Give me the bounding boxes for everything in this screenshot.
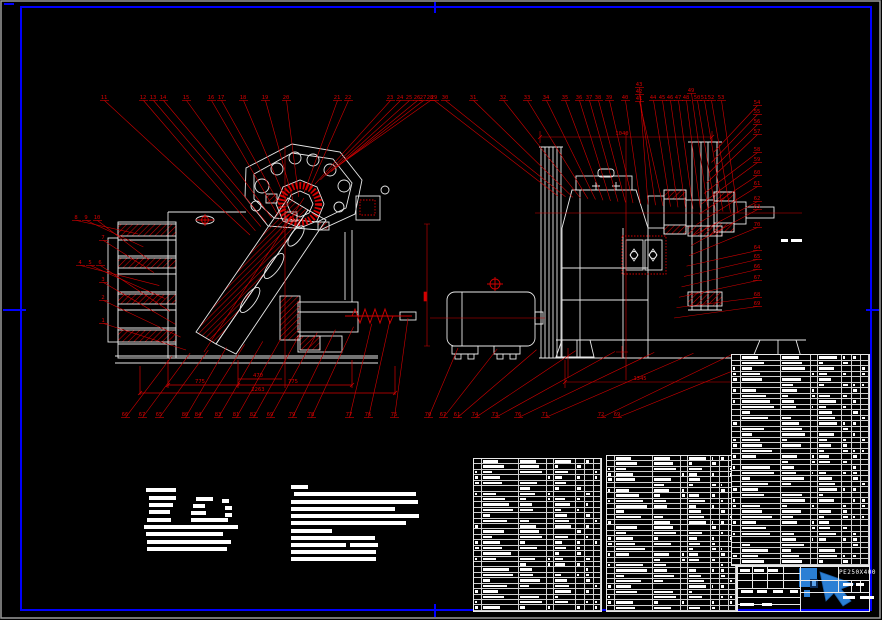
table-cell [585, 584, 594, 588]
table-cell [852, 520, 862, 525]
cell-text-bar [689, 468, 702, 471]
cell-text-bar [782, 389, 798, 392]
cell-text-bar [548, 498, 550, 501]
table-cell [653, 606, 681, 610]
callout-number: 31 [470, 95, 477, 101]
cell-text-bar [819, 527, 830, 530]
table-cell [474, 562, 482, 566]
table-cell [594, 551, 601, 555]
table-cell [519, 524, 547, 528]
cell-text-bar [843, 406, 845, 409]
cell-text-bar [819, 488, 837, 491]
table-cell [474, 524, 482, 528]
table-cell [842, 465, 852, 470]
table-cell [741, 372, 781, 377]
cell-text-bar [742, 544, 750, 547]
cell-text-bar [555, 601, 568, 604]
table-cell [861, 548, 869, 553]
cell-text-bar [586, 536, 588, 539]
table-cell [576, 492, 585, 496]
table-cell [811, 399, 819, 404]
table-cell [781, 498, 811, 503]
table-cell [842, 383, 852, 388]
callout-number: 61 [454, 412, 461, 418]
table-cell [482, 502, 519, 506]
table-cell [585, 540, 594, 544]
table-cell [741, 383, 781, 388]
table-cell [519, 513, 547, 517]
table-cell [594, 470, 601, 474]
cell-text-bar [712, 537, 714, 540]
cell-text-bar [733, 533, 735, 536]
table-cell [519, 497, 547, 501]
table-cell [818, 465, 842, 470]
cell-text-bar [654, 468, 676, 471]
cell-text-bar [654, 580, 663, 583]
cell-text-bar [483, 541, 500, 544]
table-cell [811, 383, 819, 388]
cell-text-bar [853, 488, 856, 491]
table-cell [554, 573, 576, 577]
cell-text-bar [475, 590, 478, 593]
table-cell [474, 589, 482, 593]
leader-line [320, 101, 400, 180]
table-cell [842, 443, 852, 448]
table-cell [781, 504, 811, 509]
table-cell [842, 388, 852, 393]
table-cell [547, 557, 554, 561]
table-cell [732, 454, 741, 459]
cell-text-bar [733, 521, 736, 524]
cell-text-bar [819, 444, 831, 447]
table-cell [681, 600, 688, 604]
cell-text-bar [853, 555, 856, 558]
table-cell [474, 557, 482, 561]
table-cell [482, 557, 519, 561]
table-cell [554, 584, 576, 588]
table-cell [811, 449, 819, 454]
leader-line [474, 101, 574, 198]
cell-text-bar [742, 516, 772, 519]
table-cell [861, 520, 869, 525]
table-cell [732, 372, 741, 377]
table-cell [818, 443, 842, 448]
table-cell [474, 578, 482, 582]
cell-text-bar [520, 563, 526, 566]
callout-number: 18 [240, 95, 247, 101]
cell-text-bar [862, 373, 865, 376]
table-cell [711, 525, 720, 529]
table-cell [720, 547, 729, 551]
table-cell [842, 366, 852, 371]
dimension-text: 775 [195, 379, 205, 385]
callout-number: 44 [650, 95, 657, 101]
table-cell [732, 476, 741, 481]
table-cell [842, 399, 852, 404]
cell-text-bar [555, 541, 562, 544]
table-cell [842, 504, 852, 509]
table-cell [681, 509, 688, 513]
callout-number: 7 [101, 235, 104, 241]
table-cell [818, 471, 842, 476]
table-cell [594, 546, 601, 550]
table-cell [482, 535, 519, 539]
table-cell [732, 471, 741, 476]
note-line [149, 496, 176, 500]
table-cell [607, 456, 615, 460]
table-cell [482, 600, 519, 604]
table-cell [741, 366, 781, 371]
cell-text-bar [577, 563, 580, 566]
leader-line [674, 307, 758, 319]
cell-text-bar [812, 521, 814, 524]
cell-text-bar [616, 553, 629, 556]
table-cell [818, 399, 842, 404]
note-line [291, 514, 419, 518]
titleblock-text-bar [856, 583, 864, 586]
leader-line [446, 101, 566, 197]
cell-text-bar [577, 574, 579, 577]
callout-leaders: 1112131415161718192021222324252627288910… [72, 82, 772, 418]
table-cell [818, 537, 842, 542]
leader-line [369, 321, 390, 418]
cell-text-bar [733, 378, 737, 381]
table-cell [585, 535, 594, 539]
cell-text-bar [853, 411, 858, 414]
cell-text-bar [608, 601, 611, 604]
table-cell [861, 405, 869, 410]
cell-text-bar [520, 487, 530, 490]
table-cell [576, 464, 585, 468]
table-cell [842, 498, 852, 503]
table-cell [681, 515, 688, 519]
table-cell [720, 568, 729, 572]
cell-text-bar [819, 406, 826, 409]
table-cell [681, 568, 688, 572]
table-cell [688, 477, 711, 481]
table-cell [519, 605, 547, 609]
table-cell [482, 551, 519, 555]
table-cell [732, 427, 741, 432]
table-cell [615, 509, 652, 513]
table-cell [554, 595, 576, 599]
table-cell [681, 488, 688, 492]
cell-text-bar [616, 601, 633, 604]
cell-text-bar [483, 514, 490, 517]
cell-text-bar [782, 395, 789, 398]
table-cell [720, 590, 729, 594]
table-cell [482, 497, 519, 501]
table-cell [711, 574, 720, 578]
table-cell [711, 467, 720, 471]
cell-text-bar [654, 601, 659, 604]
table-cell [554, 551, 576, 555]
table-cell [653, 590, 681, 594]
cell-text-bar [733, 373, 736, 376]
table-cell [615, 472, 652, 476]
leader-line [310, 101, 349, 189]
table-cell [474, 470, 482, 474]
table-cell [711, 547, 720, 551]
table-cell [519, 492, 547, 496]
table-cell [681, 574, 688, 578]
cell-text-bar [654, 457, 670, 460]
table-cell [818, 515, 842, 520]
table-cell [519, 546, 547, 550]
table-cell [811, 443, 819, 448]
table-cell [741, 537, 781, 542]
leader-line [640, 102, 664, 206]
table-cell [732, 394, 741, 399]
cell-text-bar [782, 472, 796, 475]
table-cell [732, 537, 741, 542]
note-line [291, 521, 406, 525]
cell-text-bar [483, 585, 507, 588]
table-cell [818, 432, 842, 437]
table-cell [547, 584, 554, 588]
table-cell [811, 537, 819, 542]
table-cell [653, 467, 681, 471]
table-cell [554, 519, 576, 523]
table-cell [720, 563, 729, 567]
table-cell [482, 524, 519, 528]
table-cell [720, 467, 729, 471]
cell-text-bar [555, 574, 561, 577]
cell-text-bar [742, 428, 764, 431]
table-cell [585, 459, 594, 463]
table-cell [729, 595, 736, 599]
table-cell [519, 557, 547, 561]
note-line [191, 511, 206, 515]
cell-text-bar [812, 389, 814, 392]
table-cell [554, 578, 576, 582]
cell-text-bar [548, 563, 550, 566]
table-cell [842, 449, 852, 454]
cell-text-bar [475, 471, 477, 474]
table-cell [781, 372, 811, 377]
callout-number: 56 [754, 119, 761, 125]
table-cell [711, 552, 720, 556]
table-cell [732, 548, 741, 553]
table-cell [811, 498, 819, 503]
table-cell [852, 493, 862, 498]
table-cell [585, 497, 594, 501]
table-cell [547, 524, 554, 528]
cell-text-bar [586, 514, 590, 517]
table-cell [688, 509, 711, 513]
table-cell [818, 427, 842, 432]
table-cell [861, 509, 869, 514]
table-cell [842, 372, 852, 377]
callout-number: 48 [683, 95, 690, 101]
cell-text-bar [689, 607, 700, 610]
table-cell [861, 454, 869, 459]
cell-text-bar [742, 510, 762, 513]
table-cell [732, 498, 741, 503]
cell-text-bar [853, 384, 855, 387]
table-cell [653, 536, 681, 540]
table-cell [688, 499, 711, 503]
table-cell [781, 537, 811, 542]
table-cell [547, 459, 554, 463]
table-cell [720, 579, 729, 583]
table-cell [653, 547, 681, 551]
cell-text-bar [782, 555, 799, 558]
cell-text-bar [689, 462, 692, 465]
cell-text-bar [843, 356, 845, 359]
bom-table [606, 455, 737, 612]
cell-text-bar [853, 422, 856, 425]
table-cell [519, 464, 547, 468]
table-cell [585, 595, 594, 599]
table-cell [607, 488, 615, 492]
table-cell [474, 600, 482, 604]
cell-text-bar [812, 538, 814, 541]
cell-text-bar [782, 384, 793, 387]
callout-number: 25 [406, 95, 413, 101]
table-cell [547, 573, 554, 577]
cell-text-bar [548, 606, 550, 609]
table-cell [732, 355, 741, 360]
table-cell [594, 535, 601, 539]
cell-text-bar [520, 520, 529, 523]
cell-text-bar [712, 543, 715, 546]
table-cell [732, 532, 741, 537]
cell-text-bar [555, 503, 570, 506]
cell-text-bar [586, 579, 590, 582]
table-cell [681, 536, 688, 540]
table-cell [729, 590, 736, 594]
cell-text-bar [475, 601, 477, 604]
table-cell [811, 465, 819, 470]
table-cell [482, 486, 519, 490]
table-cell [607, 563, 615, 567]
table-cell [811, 372, 819, 377]
cell-text-bar [616, 516, 640, 519]
table-cell [818, 355, 842, 360]
table-cell [681, 472, 688, 476]
table-cell [852, 476, 862, 481]
cell-text-bar [782, 461, 789, 464]
table-cell [688, 584, 711, 588]
note-line [144, 525, 238, 529]
table-cell [615, 499, 652, 503]
table-cell [732, 559, 741, 564]
cell-text-bar [555, 487, 559, 490]
table-cell [554, 557, 576, 561]
cell-text-bar [782, 538, 796, 541]
cell-text-bar [843, 439, 846, 442]
cell-text-bar [843, 555, 845, 558]
cell-text-bar [616, 462, 637, 465]
table-cell [711, 456, 720, 460]
table-cell [720, 499, 729, 503]
table-cell [842, 548, 852, 553]
table-cell [547, 567, 554, 571]
table-cell [732, 361, 741, 366]
callout-number: 76 [515, 412, 522, 418]
cell-text-bar [812, 505, 814, 508]
cell-text-bar [483, 536, 492, 539]
table-cell [474, 502, 482, 506]
cell-text-bar [616, 505, 646, 508]
cell-text-bar [742, 389, 756, 392]
table-cell [811, 366, 819, 371]
table-cell [519, 589, 547, 593]
cell-text-bar [853, 450, 855, 453]
cell-text-bar [742, 400, 770, 403]
cell-text-bar [555, 471, 568, 474]
table-cell [842, 438, 852, 443]
table-cell [852, 537, 862, 542]
leader-line [458, 350, 537, 418]
cell-text-bar [843, 395, 846, 398]
cell-text-bar [577, 487, 581, 490]
callout-number: 55 [754, 109, 761, 115]
cell-text-bar [742, 406, 774, 409]
cell-text-bar [742, 527, 766, 530]
cell-text-bar [616, 468, 625, 471]
titleblock-text-bar [790, 590, 798, 593]
table-cell [615, 595, 652, 599]
cell-text-bar [782, 417, 792, 420]
table-cell [615, 568, 652, 572]
table-cell [842, 520, 852, 525]
table-cell [861, 449, 869, 454]
table-cell [852, 438, 862, 443]
cell-text-bar [689, 510, 701, 513]
leader-line [144, 101, 256, 231]
table-cell [852, 504, 862, 509]
leader-line [395, 318, 409, 418]
cell-text-bar [654, 526, 673, 529]
cell-text-bar [733, 367, 735, 370]
cell-text-bar [742, 488, 758, 491]
table-cell [474, 486, 482, 490]
table-cell [861, 399, 869, 404]
cell-text-bar [812, 395, 815, 398]
callout-number: 80 [182, 412, 189, 418]
cell-text-bar [742, 378, 762, 381]
table-cell [741, 443, 781, 448]
table-cell [482, 508, 519, 512]
table-cell [594, 600, 601, 604]
note-line [291, 529, 332, 533]
cell-text-bar [733, 439, 736, 442]
cell-text-bar [853, 516, 855, 519]
table-cell [861, 559, 869, 564]
cell-text-bar [475, 541, 478, 544]
cell-text-bar [483, 568, 509, 571]
table-cell [720, 542, 729, 546]
table-cell [585, 486, 594, 490]
table-cell [554, 475, 576, 479]
table-cell [818, 416, 842, 421]
cell-text-bar [483, 579, 490, 582]
table-cell [852, 355, 862, 360]
table-cell [861, 498, 869, 503]
cell-text-bar [577, 530, 581, 533]
dimension-text: 470 [253, 373, 263, 379]
cell-text-bar [819, 455, 828, 458]
callout-number: 83 [215, 412, 222, 418]
cell-text-bar [689, 484, 693, 487]
titleblock-text-bar [740, 603, 754, 606]
cell-text-bar [812, 373, 814, 376]
cell-text-bar [843, 384, 848, 387]
table-cell [607, 579, 615, 583]
cell-text-bar [689, 559, 699, 562]
